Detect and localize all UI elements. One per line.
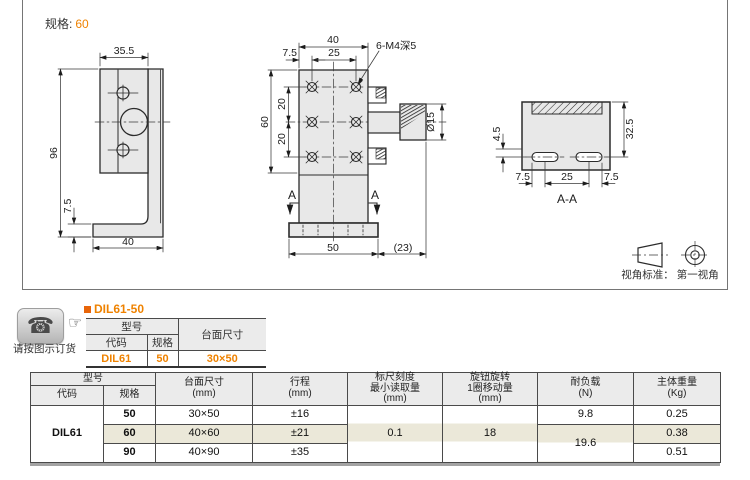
phone-icon: ☎ <box>17 308 64 344</box>
cell-spec-50: 50 <box>104 405 156 424</box>
cell-travel-50: ±16 <box>253 405 348 424</box>
cell-spec-90: 90 <box>104 443 156 462</box>
catalog-page: { "drawing": { "spec_label": "规格:", "spe… <box>0 0 750 480</box>
svg-text:A: A <box>371 188 379 202</box>
cell-weight-50: 0.25 <box>634 405 721 424</box>
dim-lv-width: 35.5 <box>114 45 135 57</box>
front-view: 40 25 7.5 60 20 20 6-M4深5 Ø15 50 (23) A … <box>259 34 446 258</box>
dim-sv-left: 7.5 <box>515 171 530 183</box>
clamp-screw-bottom <box>368 148 386 164</box>
header-code: 代码 <box>31 386 104 405</box>
header-spec: 规格 <box>104 386 156 405</box>
dim-fv-height: 60 <box>259 116 271 128</box>
header-load: 耐负载(N) <box>538 373 634 406</box>
table-row-50: DIL61 50 30×50 ±16 0.1 18 9.8 0.25 <box>31 405 721 424</box>
thread-note: 6-M4深5 <box>376 40 416 52</box>
cell-load-50: 9.8 <box>538 405 634 424</box>
header-table-size: 台面尺寸(mm) <box>156 373 253 406</box>
dim-sv-right: 7.5 <box>604 171 619 183</box>
order-value-code: DIL61 <box>86 351 147 368</box>
cell-size-90: 40×90 <box>156 443 253 462</box>
spec-table-wrapper: 型号 台面尺寸(mm) 行程(mm) 标尺刻度最小读取量(mm) 旋钮旋转1圈移… <box>30 372 720 466</box>
cell-load-60-90: 19.6 <box>538 424 634 462</box>
cell-scale-reading: 0.1 <box>348 405 443 462</box>
clamp-screw-top <box>368 87 386 103</box>
header-travel: 行程(mm) <box>253 373 348 406</box>
dim-sv-pitch: 25 <box>561 171 573 183</box>
technical-drawing: 35.5 96 7.5 40 <box>22 0 727 292</box>
order-example-table: 型号 台面尺寸 代码 规格 DIL61 50 30×50 <box>86 318 266 368</box>
cell-spec-60: 60 <box>104 424 156 443</box>
dim-lv-base-w: 40 <box>122 236 134 248</box>
cell-travel-90: ±35 <box>253 443 348 462</box>
dim-knob-dia: Ø15 <box>425 112 437 132</box>
dim-fv-width: 40 <box>327 34 339 46</box>
bullet-square-icon <box>84 306 91 313</box>
header-scale-reading: 标尺刻度最小读取量(mm) <box>348 373 443 406</box>
projection-symbol: 视角标准： 第一视角 <box>621 241 718 281</box>
projection-note: 视角标准： 第一视角 <box>621 268 718 281</box>
order-header-size: 台面尺寸 <box>178 319 266 351</box>
dim-fv-base: 50 <box>327 242 339 254</box>
order-value-size: 30×50 <box>178 351 266 368</box>
adjustment-knob <box>368 104 426 140</box>
dim-sv-offset: 4.5 <box>491 127 503 142</box>
dim-knob-ext: (23) <box>394 242 413 254</box>
cell-travel-60: ±21 <box>253 424 348 443</box>
cell-size-60: 40×60 <box>156 424 253 443</box>
section-label: A-A <box>557 192 577 206</box>
dim-fv-pitch-x: 25 <box>328 47 340 59</box>
header-knob-travel: 旋钮旋转1圈移动量(mm) <box>443 373 538 406</box>
dim-sv-height: 32.5 <box>624 119 636 140</box>
header-weight: 主体重量(Kg) <box>634 373 721 406</box>
order-header-spec: 规格 <box>147 335 178 351</box>
order-header-model: 型号 <box>86 319 178 335</box>
order-caption: 请按图示订货 <box>13 341 76 356</box>
svg-text:A: A <box>288 188 296 202</box>
cell-weight-90: 0.51 <box>634 443 721 462</box>
pointing-hand-icon: ☞ <box>68 313 82 333</box>
order-header-code: 代码 <box>86 335 147 351</box>
section-view: 32.5 4.5 7.5 25 7.5 A-A <box>491 102 636 206</box>
dim-fv-pitch-y1: 20 <box>276 98 288 110</box>
cell-knob-travel: 18 <box>443 405 538 462</box>
dim-fv-edge: 7.5 <box>282 47 297 59</box>
dim-lv-height: 96 <box>48 147 60 159</box>
order-example-model: DIL61-50 <box>94 302 144 316</box>
order-example-title: DIL61-50 <box>84 302 144 316</box>
dim-lv-base-th: 7.5 <box>62 199 74 214</box>
dim-fv-pitch-y2: 20 <box>276 133 288 145</box>
cell-size-50: 30×50 <box>156 405 253 424</box>
side-view: 35.5 96 7.5 40 <box>48 45 170 252</box>
cell-weight-60: 0.38 <box>634 424 721 443</box>
cell-code: DIL61 <box>31 405 104 462</box>
spec-table: 型号 台面尺寸(mm) 行程(mm) 标尺刻度最小读取量(mm) 旋钮旋转1圈移… <box>30 372 721 463</box>
order-value-spec: 50 <box>147 351 178 368</box>
header-model: 型号 <box>31 373 156 386</box>
